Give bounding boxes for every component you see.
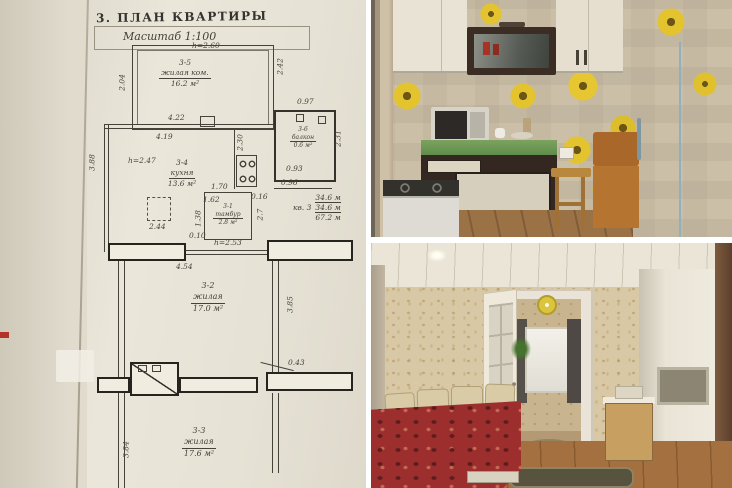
- stool-crossbar: [557, 202, 583, 206]
- wall-segment-a: [108, 243, 186, 261]
- flue-vent-1: [138, 365, 147, 372]
- wall-segment-e: [266, 372, 353, 391]
- room-3-6-id: 3-6: [278, 126, 328, 134]
- kitchen-photo: [371, 0, 732, 237]
- room-3-5-id: 3-5: [150, 58, 220, 68]
- room-3-4-id: 3-4: [152, 158, 212, 168]
- dim-0-16: 0.16: [251, 192, 268, 201]
- room-3-6-area: 0.6 м²: [278, 142, 328, 150]
- cabinet-handle-1: [576, 50, 579, 65]
- room-label-3-1: 3-1 тамбур 2.8 м²: [206, 203, 250, 227]
- radiator-symbol-1: [296, 114, 304, 122]
- dim-0-97: 0.97: [297, 97, 314, 106]
- room-3-3-id: 3-3: [166, 426, 232, 437]
- microwave-door: [435, 111, 467, 139]
- dim-1-38: 1.38: [194, 207, 203, 231]
- radiator-symbol-2: [318, 116, 326, 124]
- ceiling-light: [427, 249, 447, 262]
- room-3-3-area: 17.6 м²: [166, 449, 232, 460]
- dim-4-54: 4.54: [176, 262, 193, 271]
- room-3-1-name: тамбур: [213, 211, 242, 220]
- room-3-1-id: 3-1: [206, 203, 250, 211]
- stove-niche: [657, 367, 709, 405]
- wall-clock: [537, 295, 557, 315]
- real-estate-collage: 3. ПЛАН КВАРТИРЫ Масштаб 1:100 h=2.60 3-…: [0, 0, 732, 488]
- room-3-5-area: 16.2 м²: [150, 79, 220, 89]
- stool-seat: [551, 168, 591, 177]
- room-3-2-area: 17.0 м²: [178, 304, 238, 315]
- cabinet-top-handle: [499, 22, 525, 27]
- tissue-box: [615, 386, 643, 399]
- room-3-4-area: 13.6 м²: [152, 179, 212, 189]
- wall-segment-c: [97, 377, 130, 393]
- room-3-4-name: кухня: [169, 168, 196, 179]
- gas-stove-top: [383, 180, 459, 196]
- total-area: 67.2 м: [315, 213, 340, 222]
- bed-frame-corner: [467, 471, 519, 483]
- room-3-1-area: 2.8 м²: [206, 219, 250, 227]
- dim-4-22: 4.22: [168, 113, 185, 122]
- dim-2-31: 2.31: [334, 127, 343, 151]
- paper-margin: [0, 0, 87, 488]
- flue-vent-2: [152, 365, 161, 372]
- red-edge-mark: [0, 332, 9, 338]
- red-can-small: [493, 44, 499, 55]
- mug: [495, 128, 505, 138]
- room-3-2-id: 3-2: [178, 281, 238, 292]
- wall-socket: [559, 147, 574, 159]
- dim-0-43: 0.43: [288, 358, 305, 367]
- paper-light-spot: [56, 350, 94, 382]
- hall-window: [525, 327, 569, 393]
- plate: [511, 132, 533, 139]
- upper-cabinet-cream-left: [393, 0, 467, 73]
- area-summary: кв. 3 34.6 м 34.6 м 67.2 м: [293, 193, 341, 222]
- floor-rug: [509, 467, 634, 488]
- upper-cabinet-cream-right: [556, 0, 623, 73]
- room-label-3-4: 3-4 кухня 13.6 м²: [152, 158, 212, 189]
- living-area: 34.6 м: [315, 193, 340, 203]
- room-3-2-left-wall: [118, 261, 125, 379]
- room-3-3-name: жилая: [182, 437, 215, 449]
- room-label-3-3: 3-3 жилая 17.6 м²: [166, 426, 232, 459]
- floor-plan-panel: 3. ПЛАН КВАРТИРЫ Масштаб 1:100 h=2.60 3-…: [0, 0, 366, 488]
- appliance-placeholder-symbol: [147, 197, 171, 221]
- dim-3-84: 3.84: [122, 438, 131, 462]
- living-area-repeat: 34.6 м: [315, 203, 340, 213]
- cabinet-handle-2: [584, 50, 587, 65]
- fridge: [631, 42, 732, 237]
- nightstand: [605, 403, 653, 461]
- bedroom-photo: [371, 243, 732, 488]
- dim-0-96: 0.96: [281, 178, 298, 187]
- dim-2-30: 2.30: [236, 131, 245, 155]
- wall-segment-d: [179, 377, 258, 393]
- room-label-3-6: 3-6 балкон 0.6 м²: [278, 126, 328, 150]
- room-3-5-name: жилая ком.: [159, 68, 211, 79]
- fridge-handle: [637, 118, 641, 160]
- room-3-3-right-wall: [272, 393, 279, 473]
- plan-title: 3. ПЛАН КВАРТИРЫ: [96, 9, 268, 25]
- dim-2-04: 2.04: [118, 71, 127, 95]
- countertop: [421, 140, 557, 155]
- dim-0-93: 0.93: [286, 164, 303, 173]
- gas-stove-front: [383, 196, 459, 237]
- room-3-2-name: жилая: [191, 292, 224, 304]
- wall-segment-b: [267, 240, 353, 261]
- dim-0-10: 0.10: [189, 231, 206, 240]
- microwave-panel: [470, 112, 485, 138]
- dim-4-19: 4.19: [156, 132, 173, 141]
- red-can: [483, 42, 490, 55]
- area-fraction: 34.6 м 34.6 м 67.2 м: [315, 193, 340, 222]
- room-label-3-2: 3-2 жилая 17.0 м²: [178, 281, 238, 314]
- dim-3-88: 3.88: [88, 151, 97, 175]
- jar: [523, 118, 531, 132]
- height-note-tambour: h=2.53: [214, 238, 242, 247]
- dim-2-44: 2.44: [149, 222, 166, 231]
- hanging-plant: [511, 337, 531, 361]
- kitchen-left-wall: [104, 124, 109, 252]
- apartment-number: кв. 3: [293, 203, 311, 212]
- hall-curtain-right: [567, 319, 581, 403]
- dim-2-7: 2.7: [256, 203, 265, 227]
- dim-3-85: 3.85: [286, 293, 295, 317]
- kitchen-top-wall: [104, 124, 274, 129]
- room-3-2-right-wall: [272, 261, 279, 379]
- room-label-3-5: 3-5 жилая ком. 16.2 м²: [150, 58, 220, 89]
- opening-sill-line: [186, 250, 267, 255]
- dim-1-70: 1.70: [211, 182, 228, 191]
- stove-symbol: [236, 155, 257, 187]
- dim-2-42: 2.42: [276, 55, 285, 79]
- room-3-6-name: балкон: [290, 134, 316, 143]
- under-balcony-line: [274, 188, 332, 190]
